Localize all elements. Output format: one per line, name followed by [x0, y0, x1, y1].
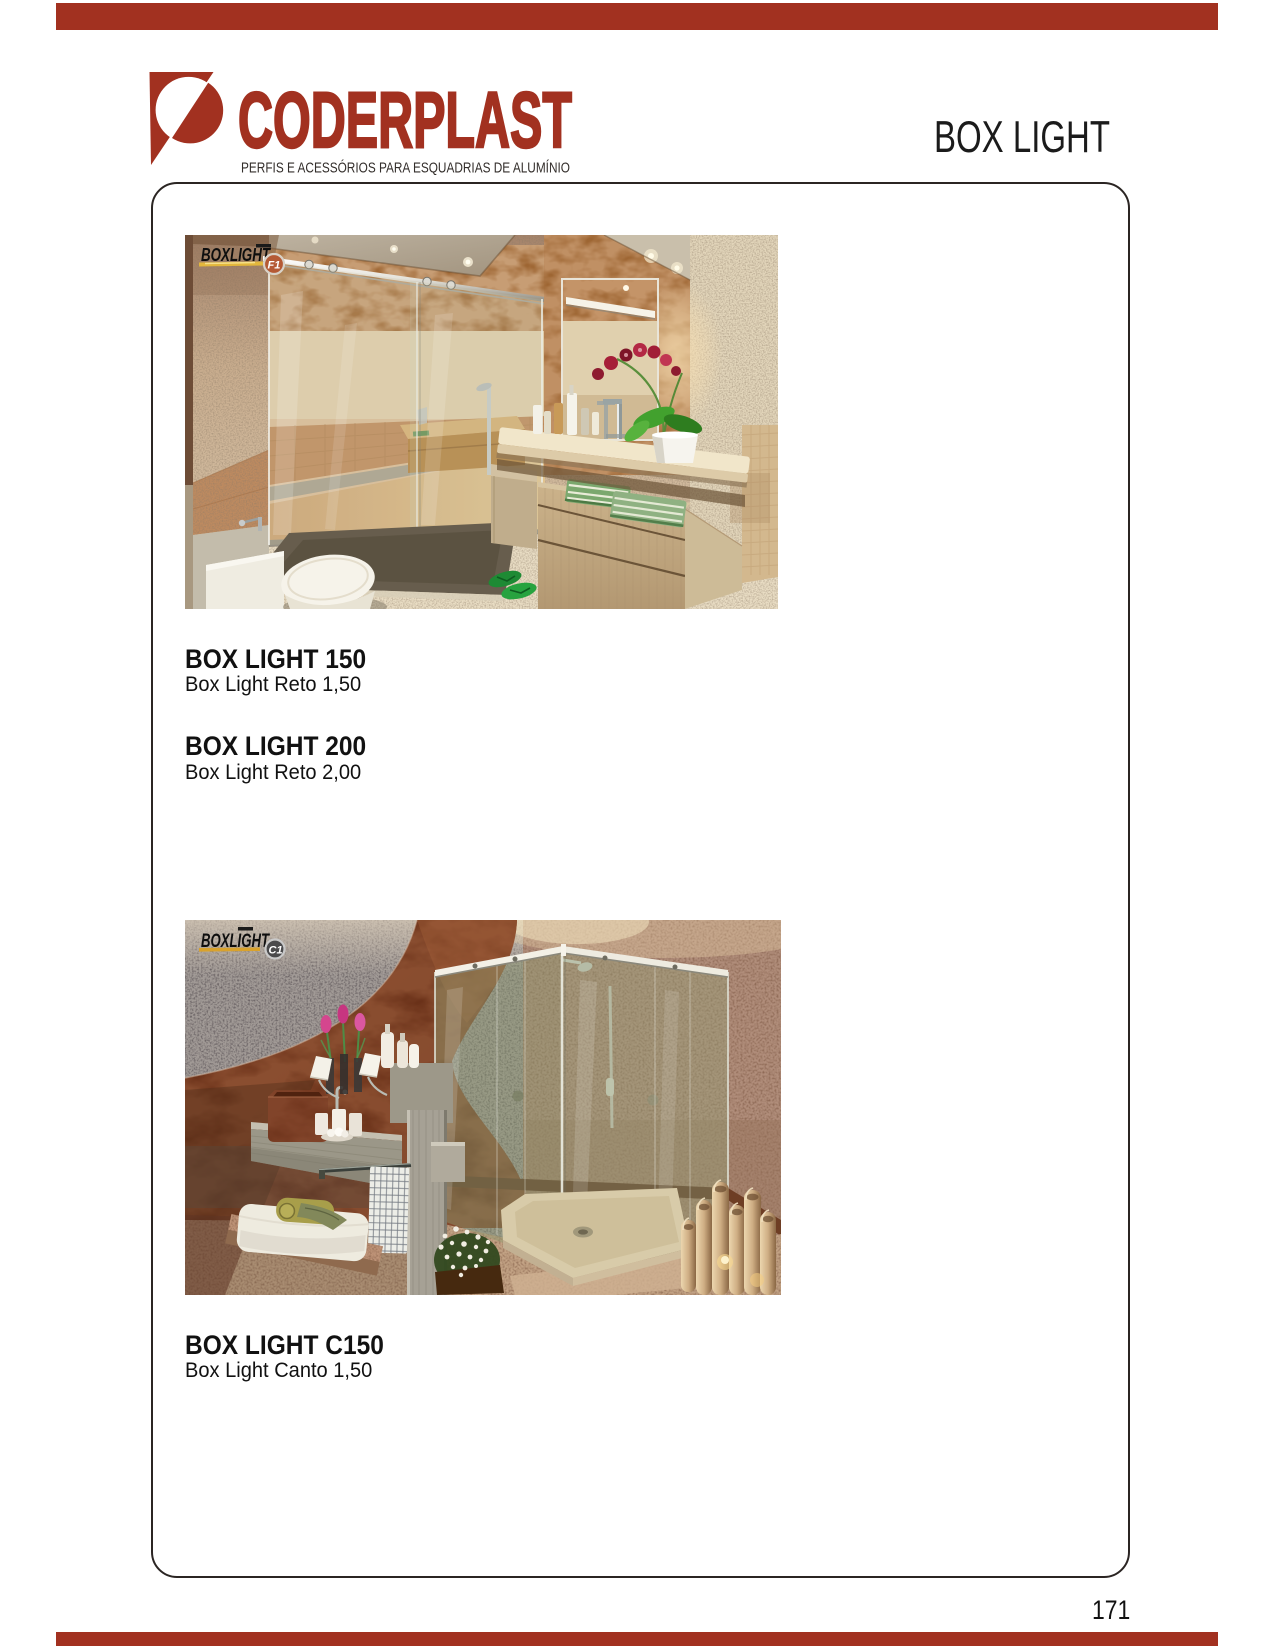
svg-text:BOX LIGHT: BOX LIGHT	[934, 113, 1110, 162]
svg-text:F1: F1	[268, 260, 281, 272]
svg-text:CODERPLAST: CODERPLAST	[238, 75, 572, 164]
svg-text:C1: C1	[269, 945, 283, 957]
svg-text:PERFIS E ACESSÓRIOS PARA ESQUA: PERFIS E ACESSÓRIOS PARA ESQUADRIAS DE A…	[241, 160, 570, 177]
